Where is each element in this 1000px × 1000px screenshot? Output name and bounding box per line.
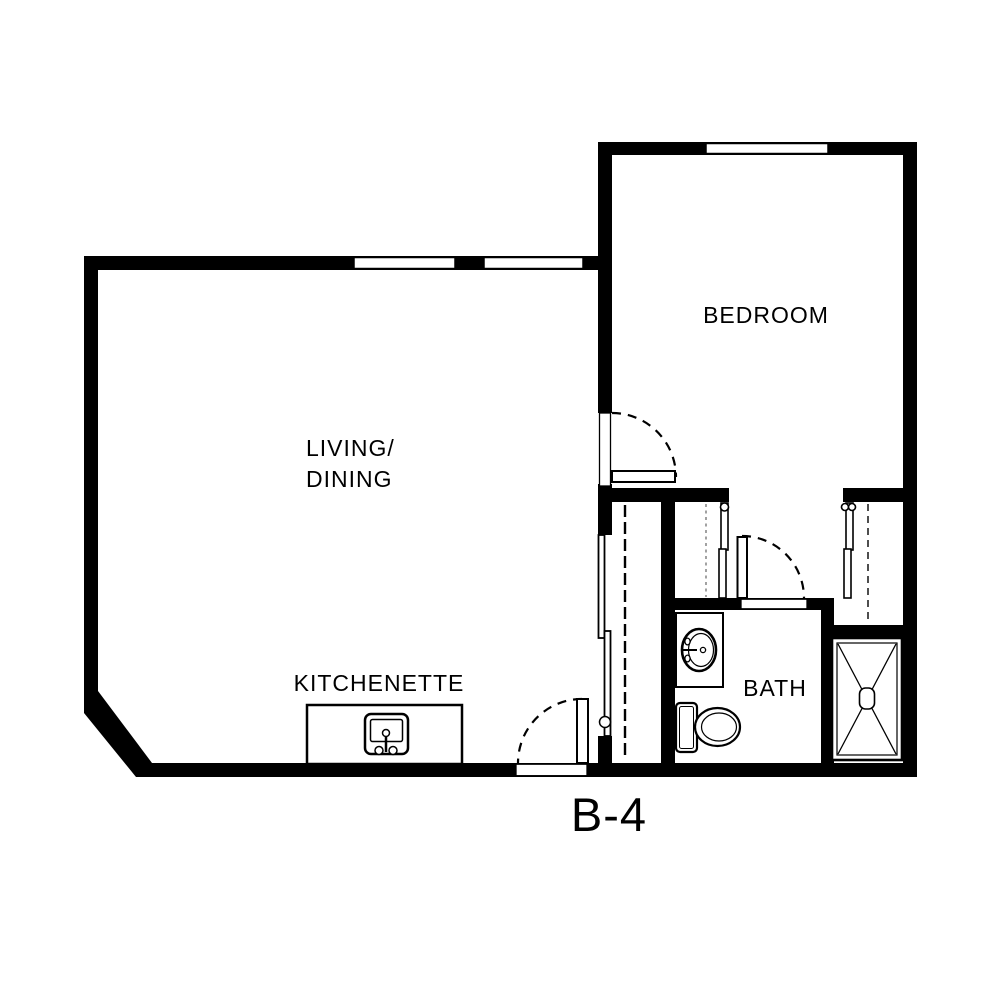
wall-hall-top-left (598, 488, 729, 502)
shower (832, 638, 902, 760)
bath-label: BATH (743, 675, 807, 701)
kitchen-faucet-base (383, 730, 390, 737)
kitchen-faucet-handle-right (389, 747, 397, 755)
closet-door-right-panel-2 (844, 549, 851, 598)
plan-title: B-4 (571, 788, 647, 841)
shower-drain (860, 688, 875, 709)
lavatory-handle-bottom (685, 655, 690, 662)
sliding-door-panel-1 (599, 535, 605, 638)
windows (354, 144, 828, 269)
bedroom-label: BEDROOM (703, 302, 829, 328)
opening-bedroom-door (600, 413, 611, 486)
bedroom-door-swing-arc (612, 413, 676, 477)
wall-left-exterior (84, 256, 98, 702)
wall-right-exterior (903, 142, 917, 777)
kitchen-faucet-handle-left (375, 747, 383, 755)
floor-plan-svg: BEDROOM LIVING/ DINING KITCHENETTE BATH … (0, 0, 1000, 1000)
wall-bedroom-left (598, 142, 612, 413)
bath-door-leaf (738, 537, 748, 598)
wall-shower-top (821, 625, 917, 638)
opening-entry-door (516, 764, 587, 776)
closet-door-right-pivot-1 (842, 504, 849, 511)
wall-hall-top-right (843, 488, 917, 502)
sliding-closet-doors (599, 535, 611, 736)
bedroom-door-leaf (612, 471, 675, 482)
entry-door-leaf (577, 699, 588, 763)
toilet-bowl-inner (702, 713, 737, 741)
window-bedroom (706, 144, 828, 154)
window-living-1 (354, 258, 455, 269)
closet-door-right-pivot-2 (849, 504, 856, 511)
kitchenette-counter (307, 705, 462, 764)
living-label-line2: DINING (306, 466, 393, 492)
wall-closet-right (661, 502, 675, 777)
living-label-line1: LIVING/ (306, 435, 395, 461)
wall-closet-left-stub-top (598, 502, 612, 535)
lavatory-handle-top (685, 638, 690, 645)
sliding-door-pull (600, 717, 611, 728)
wall-closet-left-stub-bottom (598, 736, 612, 777)
kitchen-sink-icon (365, 714, 408, 755)
vestibule-closet-door-right (842, 503, 856, 598)
vanity (676, 613, 723, 687)
opening-bath-door (741, 599, 807, 609)
lavatory-drain (700, 647, 705, 652)
closet-door-left-pivot (721, 503, 729, 511)
closet-door-left-panel-2 (719, 549, 726, 598)
toilet-tank-inner (680, 707, 694, 749)
vestibule-closet-door-left (719, 503, 729, 598)
bath-door-swing-arc (742, 536, 804, 598)
floor-plan: BEDROOM LIVING/ DINING KITCHENETTE BATH … (0, 0, 1000, 1000)
kitchenette-label: KITCHENETTE (294, 670, 465, 696)
window-living-2 (484, 258, 583, 269)
toilet (676, 703, 740, 752)
entry-door-swing-arc (518, 699, 582, 763)
